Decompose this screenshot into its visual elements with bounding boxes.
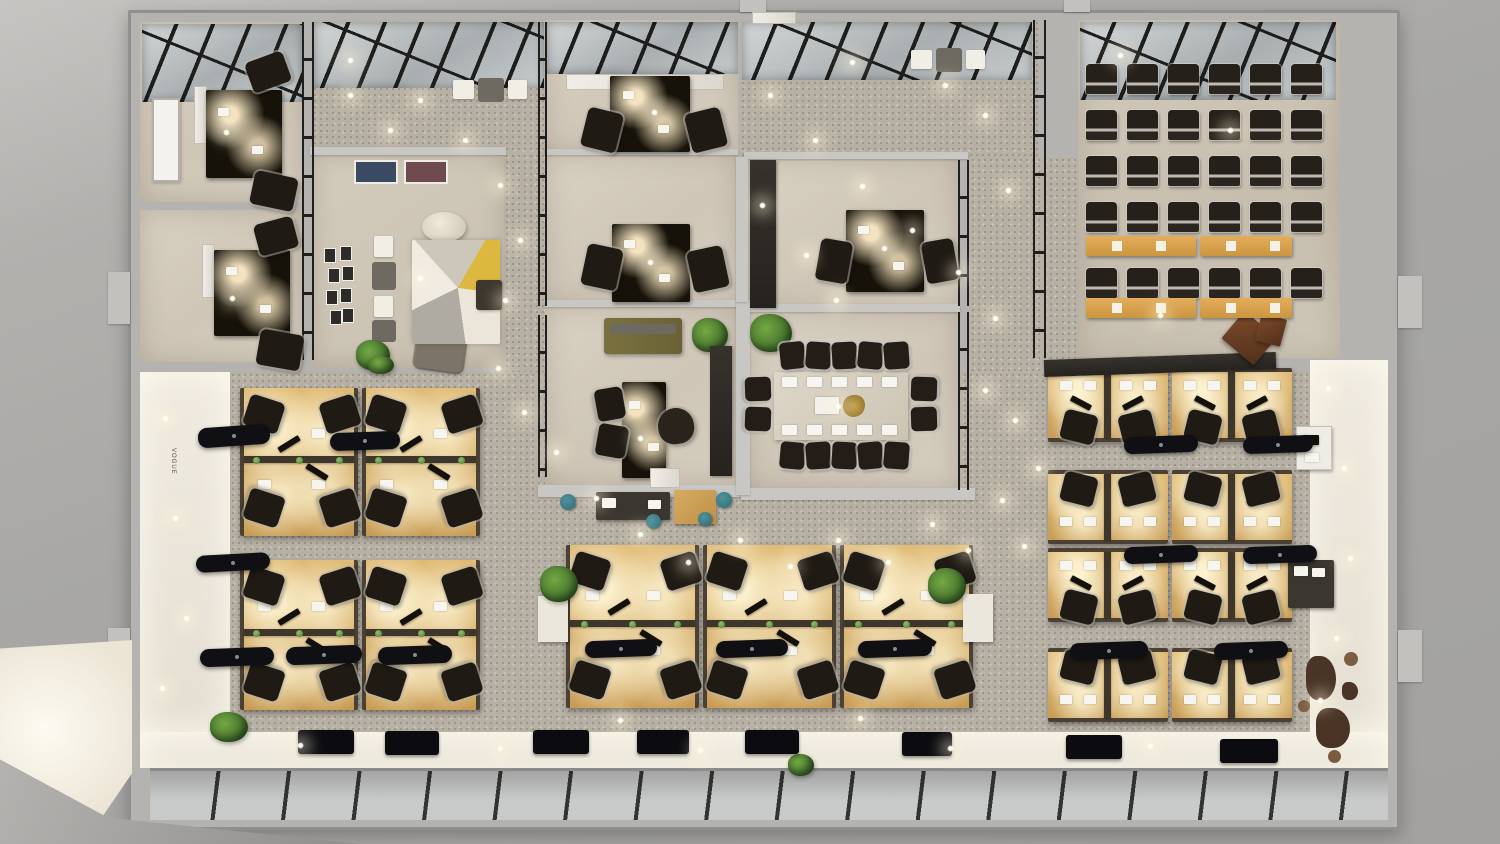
privacy-screen bbox=[330, 431, 401, 451]
pod-spine bbox=[1228, 652, 1235, 718]
conference-chair bbox=[779, 341, 807, 370]
pillow bbox=[374, 296, 393, 317]
paper bbox=[434, 429, 447, 438]
office-chair bbox=[242, 487, 286, 529]
paper bbox=[1208, 381, 1220, 390]
downlight bbox=[172, 515, 179, 522]
downlight bbox=[1325, 385, 1332, 392]
downlight bbox=[759, 202, 766, 209]
paper bbox=[1060, 381, 1072, 390]
paper bbox=[1208, 517, 1220, 526]
seat-cushion bbox=[610, 324, 676, 334]
downlight bbox=[885, 559, 892, 566]
notepad bbox=[832, 425, 847, 435]
monitor bbox=[428, 463, 452, 481]
downlight bbox=[617, 717, 624, 724]
downlight bbox=[651, 109, 658, 116]
downlight bbox=[1157, 312, 1164, 319]
paper bbox=[1208, 561, 1220, 570]
monitor bbox=[881, 598, 905, 616]
desk-plant bbox=[336, 630, 343, 637]
office-chair bbox=[364, 565, 408, 607]
privacy-screen bbox=[1214, 641, 1289, 661]
wall-stub bbox=[740, 0, 766, 12]
notepad bbox=[857, 377, 872, 387]
display-panel bbox=[902, 732, 952, 756]
desk-pod bbox=[1172, 470, 1292, 544]
desk-plant bbox=[903, 621, 910, 628]
picture-frame bbox=[342, 266, 354, 281]
downlight bbox=[881, 245, 888, 252]
monitor bbox=[1193, 575, 1215, 591]
downlight bbox=[521, 409, 528, 416]
office-chair bbox=[1241, 588, 1281, 625]
sofa bbox=[904, 42, 1024, 90]
picture-frame bbox=[342, 308, 354, 323]
training-chair bbox=[1086, 110, 1117, 140]
skylight-glazing bbox=[547, 22, 738, 74]
wall bbox=[310, 147, 506, 155]
privacy-screen bbox=[1243, 545, 1318, 565]
paper bbox=[312, 480, 325, 489]
monitor bbox=[744, 598, 768, 616]
desk-pod bbox=[566, 545, 699, 708]
whiteboard bbox=[152, 98, 180, 182]
monitor bbox=[399, 608, 423, 626]
paper bbox=[1144, 695, 1156, 704]
map-continent bbox=[1306, 656, 1336, 700]
paper bbox=[312, 429, 325, 438]
office-chair bbox=[568, 659, 612, 701]
monitor bbox=[277, 435, 301, 453]
paper bbox=[1144, 381, 1156, 390]
downlight bbox=[495, 365, 502, 372]
pod-spine bbox=[1104, 474, 1111, 540]
seat-cushion bbox=[372, 320, 396, 342]
monitor bbox=[277, 608, 301, 626]
paper bbox=[434, 480, 447, 489]
printer bbox=[1294, 566, 1308, 576]
monitor bbox=[1246, 575, 1268, 591]
paper bbox=[784, 591, 797, 600]
map-continent bbox=[1316, 708, 1350, 748]
corridor-right-floor bbox=[970, 157, 1078, 372]
paper bbox=[629, 401, 640, 409]
desk-pod bbox=[1048, 368, 1168, 442]
glass-partition bbox=[1033, 20, 1046, 358]
downlight bbox=[417, 97, 424, 104]
office-chair bbox=[593, 386, 626, 422]
privacy-screen bbox=[858, 639, 933, 659]
paper bbox=[1060, 517, 1072, 526]
display-panel bbox=[298, 730, 354, 754]
privacy-screen bbox=[200, 647, 275, 668]
downlight bbox=[929, 521, 936, 528]
training-chair bbox=[1168, 110, 1199, 140]
downlight bbox=[767, 92, 774, 99]
downlight bbox=[833, 297, 840, 304]
training-chair bbox=[1127, 64, 1158, 94]
privacy-screen bbox=[585, 639, 658, 659]
display-panel bbox=[1066, 735, 1122, 759]
training-chair bbox=[1250, 110, 1281, 140]
paper bbox=[1268, 517, 1280, 526]
sofa bbox=[366, 228, 412, 348]
art-frame bbox=[354, 160, 398, 184]
downlight bbox=[517, 237, 524, 244]
monitor bbox=[1193, 395, 1215, 411]
downlight bbox=[502, 297, 509, 304]
downlight bbox=[835, 537, 842, 544]
office-chair bbox=[659, 550, 703, 592]
conference-chair bbox=[857, 441, 884, 470]
conference-chair bbox=[745, 377, 772, 402]
office-chair bbox=[318, 565, 362, 607]
wall bbox=[741, 488, 975, 500]
office-chair bbox=[1117, 588, 1157, 625]
pillow bbox=[374, 236, 393, 257]
paper bbox=[1208, 695, 1220, 704]
monitor bbox=[1069, 575, 1091, 591]
training-table bbox=[1086, 236, 1196, 256]
desk-pod bbox=[1172, 368, 1292, 442]
downlight bbox=[647, 259, 654, 266]
stool bbox=[698, 512, 712, 526]
dark-feature-panel bbox=[710, 346, 732, 476]
downlight bbox=[1005, 187, 1012, 194]
training-table bbox=[1200, 298, 1292, 318]
paper bbox=[1305, 453, 1319, 462]
downlight bbox=[947, 745, 954, 752]
paper bbox=[380, 480, 393, 489]
monitor bbox=[1122, 395, 1144, 411]
paper bbox=[647, 591, 660, 600]
downlight bbox=[462, 137, 469, 144]
wall-stub bbox=[108, 272, 130, 324]
office-floorplan-render: VOGUE bbox=[0, 0, 1500, 844]
desk-plant bbox=[418, 630, 425, 637]
desk-plant bbox=[296, 630, 303, 637]
training-chair bbox=[1086, 64, 1117, 94]
downlight bbox=[849, 59, 856, 66]
downlight bbox=[965, 547, 972, 554]
training-chair bbox=[1168, 202, 1199, 232]
paper bbox=[1084, 517, 1096, 526]
olive-sofa bbox=[604, 318, 682, 354]
picture-frame bbox=[330, 310, 342, 325]
glass-partition bbox=[538, 315, 547, 477]
desk-plant bbox=[581, 621, 588, 628]
display-panel bbox=[637, 730, 689, 754]
office-chair bbox=[440, 565, 484, 607]
monitor bbox=[1122, 575, 1144, 591]
picture-frame bbox=[340, 246, 352, 261]
training-table bbox=[1086, 298, 1196, 318]
notepad bbox=[832, 377, 847, 387]
training-chair bbox=[1127, 156, 1158, 186]
paper bbox=[434, 602, 447, 611]
downlight bbox=[955, 269, 962, 276]
paper bbox=[1084, 695, 1096, 704]
picture-frame bbox=[326, 290, 338, 305]
downlight bbox=[697, 747, 704, 754]
paper bbox=[624, 240, 635, 248]
paper bbox=[1084, 561, 1096, 570]
gallery-wall bbox=[322, 244, 356, 338]
map-disc bbox=[1344, 652, 1358, 666]
paper bbox=[858, 226, 869, 234]
dark-desk bbox=[214, 250, 290, 336]
seat-cushion bbox=[936, 48, 962, 72]
display-panel bbox=[385, 731, 439, 755]
downlight bbox=[685, 559, 692, 566]
map-disc bbox=[1298, 700, 1310, 712]
office-chair bbox=[659, 659, 703, 701]
dark-feature-panel bbox=[750, 160, 776, 308]
paper bbox=[658, 125, 669, 133]
desk-plant bbox=[674, 621, 681, 628]
conference-chair bbox=[831, 341, 857, 369]
conference-chair bbox=[805, 341, 832, 370]
paper bbox=[1184, 561, 1196, 570]
pillow bbox=[453, 80, 474, 99]
desk-plant bbox=[336, 457, 343, 464]
paper bbox=[1144, 517, 1156, 526]
training-chair bbox=[1168, 268, 1199, 298]
privacy-screen bbox=[286, 645, 363, 666]
desk-plant bbox=[718, 621, 725, 628]
privacy-screen bbox=[1243, 435, 1314, 454]
sofa bbox=[446, 72, 532, 118]
downlight bbox=[1317, 697, 1324, 704]
world-map-decal bbox=[1298, 652, 1368, 764]
paper bbox=[1244, 381, 1256, 390]
downlight bbox=[497, 745, 504, 752]
printer-station bbox=[1288, 560, 1334, 608]
paper bbox=[218, 108, 229, 116]
planter-box bbox=[963, 594, 993, 642]
conference-chair bbox=[805, 441, 832, 470]
notepad bbox=[782, 377, 797, 387]
desk-plant bbox=[458, 630, 465, 637]
desk-plant bbox=[296, 457, 303, 464]
art-frame bbox=[404, 160, 448, 184]
office-chair bbox=[242, 565, 286, 607]
gallery-walkway-floor bbox=[140, 372, 230, 732]
training-chair bbox=[1209, 110, 1240, 140]
curtain-wall-glazing bbox=[150, 768, 1388, 820]
office-chair bbox=[1059, 408, 1099, 445]
office-chair bbox=[705, 550, 749, 592]
desk-pod bbox=[362, 388, 480, 536]
wall bbox=[746, 304, 960, 312]
training-chair bbox=[1291, 110, 1322, 140]
downlight bbox=[1333, 635, 1340, 642]
downlight bbox=[553, 449, 560, 456]
downlight bbox=[737, 537, 744, 544]
conference-chair bbox=[745, 407, 772, 432]
picture-frame bbox=[340, 288, 352, 303]
notepad bbox=[857, 425, 872, 435]
wall-stub bbox=[1398, 276, 1422, 328]
training-chair bbox=[1168, 64, 1199, 94]
privacy-screen bbox=[716, 639, 789, 659]
paper bbox=[1120, 695, 1132, 704]
office-chair bbox=[594, 423, 629, 460]
desk-plant bbox=[458, 457, 465, 464]
downlight bbox=[857, 715, 864, 722]
downlight bbox=[162, 415, 169, 422]
plant bbox=[540, 566, 578, 602]
pod-spine bbox=[1228, 372, 1235, 438]
plant bbox=[788, 754, 814, 776]
training-table bbox=[1200, 236, 1292, 256]
paper bbox=[226, 267, 237, 275]
plant bbox=[928, 568, 966, 604]
printer bbox=[648, 500, 661, 509]
downlight bbox=[347, 57, 354, 64]
pod-spine bbox=[1104, 372, 1111, 438]
downlight bbox=[992, 315, 999, 322]
downlight bbox=[803, 252, 810, 259]
dark-desk bbox=[206, 90, 282, 178]
office-chair bbox=[364, 661, 408, 703]
desk-pod bbox=[362, 560, 480, 710]
picture-frame bbox=[328, 268, 340, 283]
map-disc bbox=[1328, 750, 1341, 763]
pod-spine bbox=[1104, 652, 1111, 718]
paper bbox=[860, 591, 873, 600]
downlight bbox=[183, 615, 190, 622]
training-chair bbox=[1209, 202, 1240, 232]
dark-desk bbox=[610, 76, 690, 152]
privacy-screen bbox=[1124, 545, 1199, 565]
paper bbox=[723, 591, 736, 600]
plant bbox=[368, 356, 394, 374]
downlight bbox=[637, 531, 644, 538]
training-chair bbox=[1291, 202, 1322, 232]
office-chair bbox=[1117, 470, 1157, 507]
stool bbox=[646, 514, 661, 529]
training-chair bbox=[1127, 110, 1158, 140]
office-chair bbox=[1183, 588, 1223, 625]
paper bbox=[1120, 381, 1132, 390]
privacy-screen bbox=[1124, 435, 1199, 455]
notepad bbox=[807, 377, 822, 387]
training-chair bbox=[1250, 64, 1281, 94]
office-chair bbox=[440, 487, 484, 529]
paper bbox=[893, 262, 904, 270]
pillow bbox=[966, 50, 985, 69]
paper bbox=[1268, 381, 1280, 390]
seat-cushion bbox=[372, 262, 396, 290]
desk-plant bbox=[418, 457, 425, 464]
training-chair bbox=[1250, 202, 1281, 232]
desk-pod bbox=[703, 545, 836, 708]
pillow bbox=[508, 80, 527, 99]
downlight bbox=[812, 137, 819, 144]
training-chair bbox=[1250, 268, 1281, 298]
notepad bbox=[882, 425, 897, 435]
monitor bbox=[607, 598, 631, 616]
paper bbox=[1120, 517, 1132, 526]
downlight bbox=[229, 295, 236, 302]
downlight bbox=[1147, 743, 1154, 750]
monitor bbox=[1246, 395, 1268, 411]
desk-pod bbox=[1048, 470, 1168, 544]
display-panel bbox=[1220, 739, 1278, 763]
downlight bbox=[909, 227, 916, 234]
office-chair bbox=[242, 661, 286, 703]
round-coffee-table bbox=[422, 212, 466, 242]
conference-chair bbox=[911, 377, 938, 402]
display-panel bbox=[745, 730, 799, 754]
downlight bbox=[1012, 417, 1019, 424]
seat-cushion bbox=[478, 78, 504, 102]
pod-spine bbox=[1104, 552, 1111, 618]
art-frames bbox=[354, 160, 446, 182]
desk-pod bbox=[1048, 648, 1168, 722]
downlight bbox=[1117, 52, 1124, 59]
downlight bbox=[999, 497, 1006, 504]
paper bbox=[1268, 695, 1280, 704]
paper bbox=[1184, 381, 1196, 390]
notepad bbox=[807, 425, 822, 435]
training-chair bbox=[1250, 156, 1281, 186]
training-chair bbox=[1086, 202, 1117, 232]
downlight bbox=[387, 127, 394, 134]
office-chair bbox=[1059, 470, 1099, 507]
conference-chair bbox=[831, 441, 857, 469]
monitor bbox=[399, 435, 423, 453]
white-credenza bbox=[650, 468, 680, 488]
conference-chair bbox=[857, 341, 884, 370]
centerpiece-plant bbox=[843, 395, 865, 417]
training-chair bbox=[1086, 156, 1117, 186]
downlight bbox=[497, 182, 504, 189]
gallery-wall-label: VOGUE bbox=[170, 448, 176, 475]
downlight bbox=[159, 685, 166, 692]
office-chair bbox=[255, 328, 305, 371]
downlight bbox=[942, 82, 949, 89]
paper bbox=[252, 146, 263, 154]
downlight bbox=[982, 112, 989, 119]
glass-partition bbox=[538, 22, 547, 306]
downlight bbox=[223, 129, 230, 136]
desk-plant bbox=[811, 621, 818, 628]
training-chair bbox=[1291, 268, 1322, 298]
privacy-screen bbox=[378, 645, 453, 666]
plant bbox=[210, 712, 248, 742]
conference-chair bbox=[883, 341, 910, 370]
office-chair bbox=[933, 659, 977, 701]
pillow bbox=[911, 50, 932, 69]
office-chair bbox=[318, 661, 362, 703]
training-chair bbox=[1209, 156, 1240, 186]
training-chair bbox=[1168, 156, 1199, 186]
office-chair bbox=[842, 659, 886, 701]
printer bbox=[602, 498, 616, 508]
downlight bbox=[982, 387, 989, 394]
downlight bbox=[593, 495, 600, 502]
paper bbox=[1060, 695, 1072, 704]
glass-partition bbox=[958, 312, 969, 490]
stool bbox=[716, 492, 732, 508]
paper bbox=[659, 274, 670, 282]
desk-plant bbox=[766, 621, 773, 628]
wall bbox=[736, 157, 748, 302]
downlight bbox=[1035, 465, 1042, 472]
